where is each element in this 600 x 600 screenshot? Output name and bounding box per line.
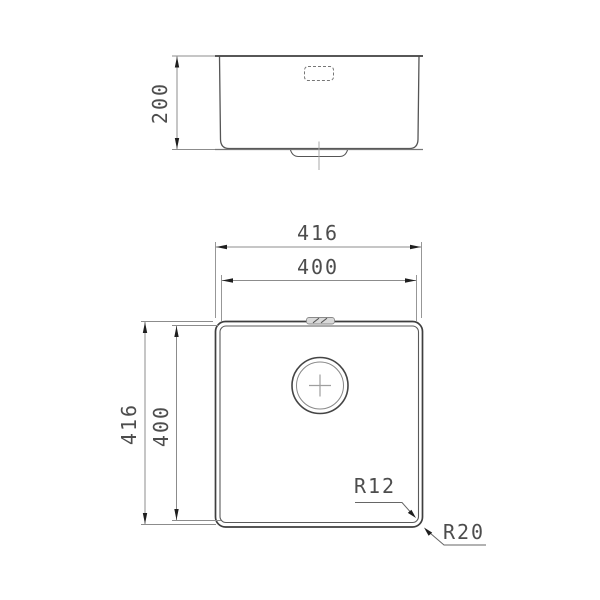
callout-radius-inner-r12: R12 [354, 474, 416, 518]
arrow-up-icon [143, 322, 147, 333]
arrow-up-icon [174, 326, 178, 337]
arrow-right-icon [410, 245, 421, 249]
plan-view-drain-hole [292, 358, 348, 414]
arrow-up-icon [175, 57, 179, 68]
radius-label-inner: R12 [354, 474, 396, 498]
arrow-down-icon [143, 513, 147, 524]
dimension-height-inner-400: 400 [149, 326, 221, 521]
arrow-right-icon [405, 278, 416, 282]
side-view-overflow-window [305, 67, 334, 81]
arrow-diagonal-icon [424, 528, 432, 536]
arrow-down-icon [175, 138, 179, 149]
radius-label-outer: R20 [443, 520, 485, 544]
arrow-left-icon [222, 278, 233, 282]
dimension-label-height-inner: 400 [149, 405, 173, 447]
dimension-depth-200: 200 [148, 56, 215, 150]
technical-drawing-page: 200 416 [0, 0, 600, 600]
callout-radius-outer-r20: R20 [424, 520, 486, 545]
dimension-label-height-outer: 416 [117, 403, 141, 445]
dimension-label-depth: 200 [148, 82, 172, 124]
arrow-down-icon [174, 509, 178, 520]
overflow-slot-body [307, 318, 335, 325]
dimension-width-inner-400: 400 [222, 255, 417, 322]
arrow-left-icon [216, 245, 227, 249]
sink-plan-view: 416 400 416 400 [117, 221, 486, 545]
sink-technical-drawing: 200 416 [0, 0, 600, 600]
sink-side-view: 200 [148, 56, 423, 170]
dimension-label-width-outer: 416 [297, 221, 339, 245]
plan-view-overflow-slot [307, 318, 335, 325]
side-view-bowl-outline [220, 57, 420, 149]
dimension-label-width-inner: 400 [297, 255, 339, 279]
leader-line [355, 503, 414, 516]
